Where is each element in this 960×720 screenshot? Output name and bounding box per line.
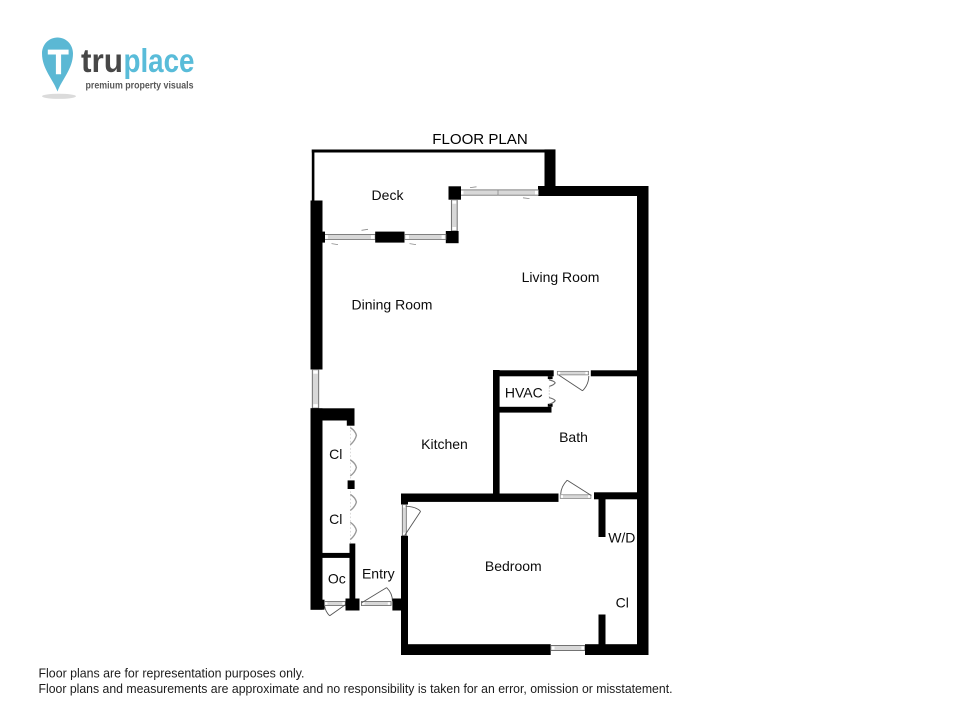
- svg-text:HVAC: HVAC: [505, 385, 543, 401]
- svg-text:premium property visuals: premium property visuals: [86, 80, 194, 92]
- svg-text:Deck: Deck: [372, 187, 405, 203]
- svg-text:Kitchen: Kitchen: [421, 436, 468, 452]
- svg-text:Entry: Entry: [362, 565, 395, 581]
- svg-text:Living Room: Living Room: [522, 269, 600, 285]
- svg-text:place: place: [124, 42, 195, 79]
- svg-text:Bedroom: Bedroom: [485, 558, 542, 574]
- svg-text:Bath: Bath: [559, 429, 588, 445]
- svg-text:FLOOR PLAN: FLOOR PLAN: [432, 132, 528, 148]
- svg-text:Dining Room: Dining Room: [352, 296, 433, 312]
- svg-text:Cl: Cl: [616, 595, 629, 611]
- svg-text:Oc: Oc: [328, 570, 346, 586]
- svg-text:Cl: Cl: [329, 446, 342, 462]
- svg-text:Cl: Cl: [329, 511, 342, 527]
- svg-text:Floor plans are for representa: Floor plans are for representation purpo…: [39, 666, 305, 680]
- svg-text:tru: tru: [81, 42, 123, 79]
- svg-text:Floor plans and measurements a: Floor plans and measurements are approxi…: [39, 682, 673, 696]
- svg-text:W/D: W/D: [608, 530, 635, 546]
